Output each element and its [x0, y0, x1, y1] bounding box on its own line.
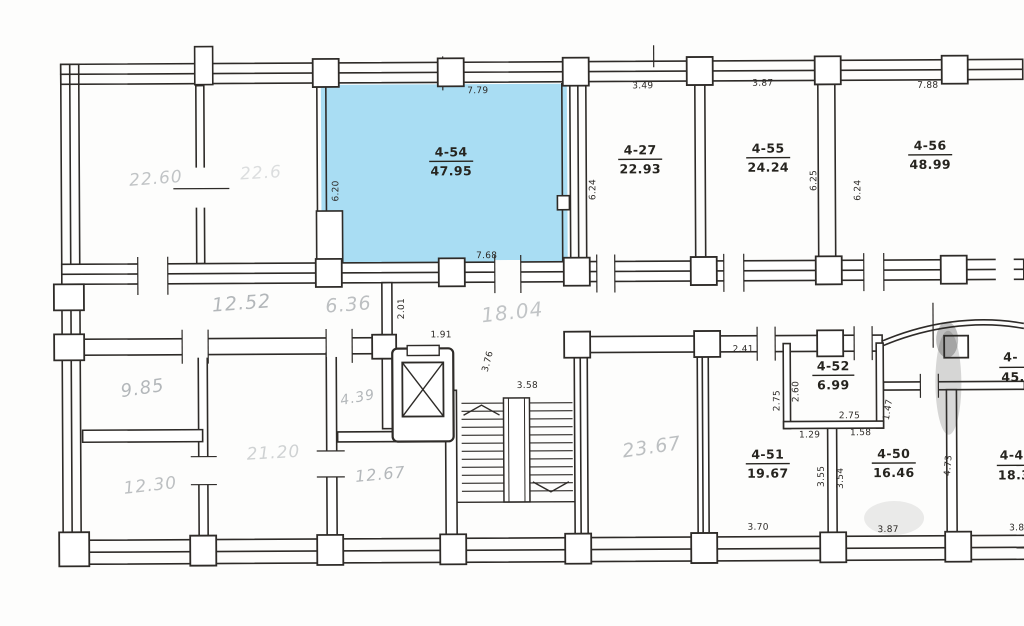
room-label-4-55: 4-55 24.24	[746, 141, 790, 175]
room-label-4-27: 4-27 22.93	[618, 142, 662, 176]
room-id: 4-56	[914, 138, 947, 153]
room-label-partial-right-top: 4- 45.	[999, 349, 1024, 384]
dim-label: 4.73	[943, 455, 955, 477]
dim-label: 6.24	[588, 179, 598, 200]
dim-label: 3.70	[747, 523, 768, 533]
pencil-area-label: 22.60	[128, 167, 183, 191]
room-area: 24.24	[747, 160, 789, 175]
scanned-floor-plan: 4-54 47.95 4-27 22.93 4-55 24.24 4-56 48…	[0, 0, 1024, 626]
pencil-area-label: 4.39	[339, 387, 376, 409]
room-id: 4-	[1003, 349, 1018, 364]
pencil-area-label: 12.67	[354, 462, 406, 486]
floor-plan-canvas: 4-54 47.95 4-27 22.93 4-55 24.24 4-56 48…	[0, 0, 1024, 626]
room-id: 4-27	[624, 142, 657, 157]
pencil-area-label: 6.36	[325, 292, 373, 317]
room-id: 4-51	[751, 447, 784, 462]
dim-label: 1.47	[882, 398, 895, 421]
room-label-partial-right-bottom: 4-4 18.3	[997, 447, 1024, 482]
pencil-area-label: 9.85	[119, 375, 166, 402]
room-label-4-56: 4-56 48.99	[908, 138, 952, 172]
room-area: 45.	[1001, 369, 1024, 384]
dim-label: 3.87	[752, 79, 773, 89]
room-label-4-52: 4-52 6.99	[812, 358, 854, 392]
pencil-area-label: 21.20	[246, 442, 301, 465]
dim-label: 3.76	[481, 350, 496, 373]
dim-label: 7.68	[476, 251, 497, 261]
dim-label: 6.24	[853, 180, 863, 201]
staircase	[456, 398, 575, 503]
dim-label: 7.79	[467, 86, 488, 96]
pencil-area-label: 12.30	[123, 473, 179, 499]
room-area: 22.93	[619, 161, 661, 176]
dim-label: 6.25	[809, 170, 819, 191]
elevator-shaft	[392, 345, 454, 441]
dim-label: 3.49	[632, 81, 653, 91]
dim-label: 1.58	[850, 428, 871, 438]
pencil-area-label: 18.04	[480, 297, 545, 328]
dim-label: 1.29	[799, 430, 820, 440]
room-id: 4-4	[1000, 447, 1024, 462]
room-id: 4-52	[817, 358, 850, 373]
room-area: 6.99	[817, 377, 850, 392]
room-area: 16.46	[873, 465, 915, 480]
pencil-area-label: 23.67	[621, 432, 683, 462]
dim-label: 2.75	[839, 411, 860, 421]
pencil-area-label: 12.52	[211, 290, 272, 316]
pencil-area-label: 22.6	[240, 162, 283, 184]
dim-label: 1.91	[430, 330, 451, 340]
dim-label: 7.88	[917, 81, 938, 91]
dim-label: 2.01	[397, 298, 407, 319]
room-id: 4-50	[877, 446, 910, 461]
dim-label: 3.58	[517, 381, 538, 391]
stair-up-arrow	[463, 405, 499, 415]
dim-label: 2.75	[772, 390, 782, 411]
room-label-4-51: 4-51 19.67	[746, 447, 790, 481]
dim-label: 3.87	[877, 525, 898, 535]
room-area: 18.3	[998, 467, 1024, 482]
dim-label: 3.8	[1009, 523, 1024, 533]
room-id: 4-54	[435, 144, 468, 159]
dim-label: 2.60	[791, 381, 801, 402]
dim-label: 3.54	[836, 468, 846, 489]
dim-label: 6.20	[331, 180, 341, 201]
stair-landing-strip	[503, 398, 530, 502]
dim-label: 2.41	[733, 345, 754, 355]
room-area: 19.67	[747, 466, 789, 481]
room-area: 48.99	[909, 157, 951, 172]
room-label-4-50: 4-50 16.46	[872, 446, 916, 480]
room-area: 47.95	[430, 163, 472, 178]
room-id: 4-55	[752, 141, 785, 156]
room-label-4-54: 4-54 47.95	[429, 144, 473, 178]
dim-label: 3.55	[817, 466, 827, 487]
